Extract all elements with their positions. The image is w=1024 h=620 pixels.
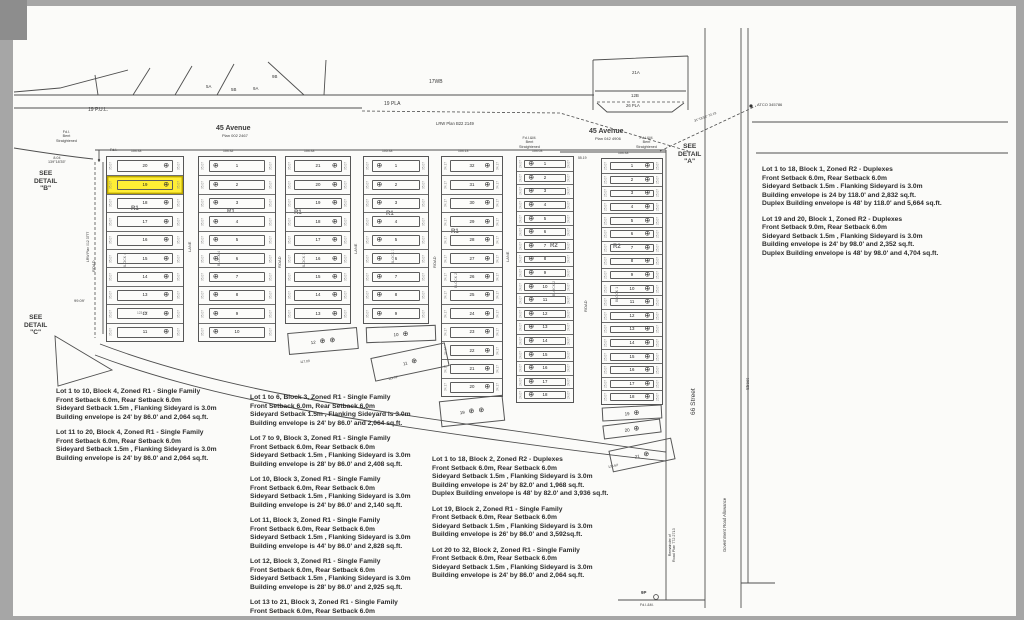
dimension-label: 35.07: [344, 273, 347, 281]
survey-marker-icon: ⊕: [528, 310, 534, 317]
dimension-label: 25.07: [604, 176, 607, 184]
see-detail-c-label: SEE DETAIL "C": [24, 314, 47, 337]
dimension-label: 35.07: [288, 218, 291, 226]
lot-row-block-2-east-18: 24.0724.0718⊕: [517, 388, 573, 402]
survey-marker-icon: ⊕: [484, 163, 490, 170]
dimension-label: 25.07: [656, 380, 659, 388]
zoning-note-line: Lot 11 to 20, Block 4, Zoned R1 - Single…: [56, 429, 252, 438]
lot-row-block-1-13: 25.0725.0713⊕: [602, 322, 662, 336]
lot-row-block-2-east-14: 24.0724.0714⊕: [517, 334, 573, 348]
lot-row-block-3-east-7: 35.0735.077⊕: [364, 267, 428, 285]
dimension-label: 25.07: [604, 353, 607, 361]
survey-marker-icon: ⊕: [163, 237, 169, 244]
dimension-label: 35.07: [344, 236, 347, 244]
building-envelope: 13⊕: [117, 290, 173, 301]
map-label: ROAD: [584, 300, 589, 312]
dimension-label: 35.07: [177, 236, 180, 244]
zoning-note-line: Sideyard Setback 1.5m , Flanking Sideyar…: [250, 534, 448, 543]
survey-marker-icon: ⊕: [484, 237, 490, 244]
dimension-label: 35.07: [201, 291, 204, 299]
lot-row-block-3-west-17: 35.0735.0717⊕: [286, 231, 350, 249]
dimension-label: 34.17: [496, 162, 499, 170]
dimension-label: 25.07: [604, 189, 607, 197]
dimension-label: 35.07: [366, 162, 369, 170]
dimension-label: 35.07: [201, 255, 204, 263]
survey-marker-icon: ⊕: [332, 292, 338, 299]
survey-marker-icon: ⊕: [402, 330, 408, 337]
dimension-label: 34.17: [444, 218, 447, 226]
dimension-label: 35.07: [269, 255, 272, 263]
dimension-label: 35.07: [288, 181, 291, 189]
map-label: Fd.I.&M. Bent Straightened: [636, 136, 657, 149]
survey-marker-icon: ⊕: [644, 162, 650, 169]
map-label: 9P: [641, 590, 646, 595]
survey-marker-icon: ⊕: [644, 244, 650, 251]
survey-marker-icon: ⊕: [484, 255, 490, 262]
dimension-label: 25.07: [604, 312, 607, 320]
building-envelope: 17⊕: [117, 216, 173, 227]
survey-marker-icon: ⊕: [376, 237, 382, 244]
dimension-label: 35.07: [269, 199, 272, 207]
survey-marker-icon: ⊕: [376, 182, 382, 189]
zoning-note-line: Building envelope is 24' by 86.0' and 2,…: [250, 420, 448, 429]
dimension-label: 35.07: [366, 273, 369, 281]
building-envelope: 27⊕: [450, 253, 494, 264]
dimension-label: 34.17: [444, 291, 447, 299]
lot-row-block-2-west-24: 34.1734.1724⊕: [442, 304, 502, 322]
dimension-label: 34.17: [444, 383, 447, 391]
lot-row-block-2-west-31: 34.1734.1731⊕: [442, 175, 502, 193]
building-envelope: 17⊕: [294, 235, 341, 246]
lot-row-block-2-west-23: 34.1734.1723⊕: [442, 323, 502, 341]
building-envelope: 15⊕: [524, 351, 565, 359]
zoning-note-line: Lot 20 to 32, Block 2, Zoned R1 - Single…: [432, 547, 636, 556]
building-envelope: 3⊕: [524, 188, 565, 196]
survey-marker-icon: ⊕: [484, 347, 490, 354]
zoning-note-line: Sideyard Setback 1.5m , Flanking Sideyar…: [250, 411, 448, 420]
dimension-label: 35.07: [344, 310, 347, 318]
survey-marker-icon: ⊕: [484, 182, 490, 189]
map-label: 5A: [206, 84, 211, 89]
building-envelope: 7⊕: [372, 272, 419, 283]
zoning-note-line: Front Setback 6.0m, Rear Setback 6.0m: [250, 526, 448, 535]
dimension-label: 35.07: [177, 273, 180, 281]
zoning-note-paragraph: Lot 1 to 18, Block 1, Zoned R2 - Duplexe…: [762, 166, 1006, 209]
dimension-label: 24.07: [567, 378, 570, 386]
dimension-label: 35.07: [177, 199, 180, 207]
block-2-west: 34.1734.1732⊕34.1734.1731⊕34.1734.1730⊕3…: [441, 156, 503, 397]
building-envelope: 3⊕: [372, 198, 419, 209]
zoning-note-line: Front Setback 9.0m, Rear Setback 6.0m: [762, 224, 1006, 233]
survey-marker-icon: ⊕: [213, 182, 219, 189]
lot-row-block-1-9: 25.0725.079⊕: [602, 268, 662, 282]
zoning-note-line: Building envelope is 24 by 118.0' and 2,…: [762, 192, 1006, 201]
dimension-label: 34.17: [444, 199, 447, 207]
survey-marker-icon: ⊕: [329, 336, 335, 343]
government-road-allowance-label: Government Road Allowance: [723, 498, 728, 552]
dimension-label: 35.07: [109, 162, 112, 170]
survey-marker-icon: ⊕: [528, 324, 534, 331]
dimension-label: 24.07: [567, 391, 570, 399]
map-label: 104.32: [223, 150, 233, 154]
dimension-label: 35.07: [177, 162, 180, 170]
survey-marker-icon: ⊕: [332, 200, 338, 207]
zoning-note-line: Sideyard Setback 1.5m , Flanking Sideyar…: [250, 452, 448, 461]
dimension-label: 24.07: [519, 255, 522, 263]
survey-marker-icon: ⊕: [528, 378, 534, 385]
survey-marker-icon: ⊕: [332, 274, 338, 281]
lot-row-block-2-east-12: 24.0724.0712⊕: [517, 307, 573, 321]
lot-row-block-2-west-29: 34.1734.1729⊕: [442, 212, 502, 230]
dimension-label: 35.07: [201, 273, 204, 281]
dimension-label: 35.07: [288, 236, 291, 244]
building-envelope: 19⊕: [294, 198, 341, 209]
dimension-label: 35.07: [269, 310, 272, 318]
dimension-label: 35.07: [201, 236, 204, 244]
survey-marker-icon: ⊕: [213, 218, 219, 225]
dimension-label: 34.17: [444, 255, 447, 263]
building-envelope: 18⊕: [610, 393, 654, 401]
survey-marker-icon: ⊕: [633, 409, 639, 416]
dimension-label: 24.07: [567, 269, 570, 277]
dimension-label: 35.07: [269, 181, 272, 189]
building-envelope: 6⊕: [610, 230, 654, 238]
dimension-label: 25.07: [656, 339, 659, 347]
zoning-note-line: Building envelope is 24' by 86.0' and 2,…: [250, 502, 448, 511]
survey-marker-icon: ⊕: [528, 392, 534, 399]
dimension-label: 35.07: [288, 162, 291, 170]
dimension-label: 35.07: [109, 199, 112, 207]
lot-row-block-4-west-18: 35.0735.0718⊕: [107, 194, 183, 212]
survey-marker-icon: ⊕: [644, 176, 650, 183]
survey-marker-icon: ⊕: [376, 218, 382, 225]
lot-row-block-4-west-12: 35.0735.0712⊕: [107, 304, 183, 322]
dimension-label: 24.07: [567, 242, 570, 250]
dimension-label: 24.07: [567, 228, 570, 236]
dimension-label: 35.07: [366, 310, 369, 318]
dimension-label: 24.07: [567, 323, 570, 331]
survey-marker-icon: ⊕: [633, 425, 640, 433]
dimension-label: 34.17: [496, 236, 499, 244]
dimension-label: 35.07: [422, 255, 425, 263]
dimension-label: 25.07: [656, 271, 659, 279]
lot-row-block-2-east-10: 24.0724.0710⊕: [517, 279, 573, 293]
survey-marker-icon: ⊕: [528, 202, 534, 209]
zoning-note-line: Front Setback 6.0m, Rear Setback 6.0m: [762, 175, 1006, 184]
scan-edge-top: [0, 0, 1024, 6]
dimension-label: 35.07: [288, 255, 291, 263]
building-envelope: 20⊕: [450, 382, 494, 393]
survey-marker-icon: ⊕: [484, 384, 490, 391]
dimension-label: 35.07: [269, 236, 272, 244]
dimension-label: 34.17: [444, 310, 447, 318]
zoning-note-paragraph: Lot 10, Block 3, Zoned R1 - Single Famil…: [250, 476, 448, 510]
dimension-label: 35.07: [109, 273, 112, 281]
dimension-label: 35.07: [366, 255, 369, 263]
building-envelope: 9⊕: [610, 271, 654, 279]
dimension-label: 34.17: [496, 181, 499, 189]
dimension-label: 35.07: [366, 199, 369, 207]
building-envelope: 11⊕: [117, 327, 173, 338]
map-label: Fd.I.&M. Bent Straightened: [519, 136, 540, 149]
lot-number: 12: [311, 339, 316, 344]
zoning-note-paragraph: Lot 20 to 32, Block 2, Zoned R1 - Single…: [432, 547, 636, 581]
survey-marker-icon: ⊕: [411, 357, 418, 365]
lot-row-block-2-east-9: 24.0724.079⊕: [517, 266, 573, 280]
building-envelope: 21⊕: [294, 160, 341, 171]
zoning-note-line: Front Setback 6.0m, Rear Setback 6.0m: [56, 397, 252, 406]
building-envelope: 6⊕: [524, 228, 565, 236]
dimension-label: 34.17: [496, 347, 499, 355]
dimension-label: 25.07: [604, 203, 607, 211]
building-envelope: 15⊕: [117, 253, 173, 264]
dimension-label: 34.17: [496, 199, 499, 207]
dimension-label: 35.07: [201, 218, 204, 226]
building-envelope: 7⊕: [610, 244, 654, 252]
dimension-label: 24.07: [567, 296, 570, 304]
dimension-label: 34.17: [496, 291, 499, 299]
survey-marker-icon: ⊕: [484, 200, 490, 207]
zoning-note-line: Duplex Building envelope is 48' by 98.0'…: [762, 250, 1006, 259]
block-4-east: 35.0735.071⊕35.0735.072⊕35.0735.073⊕35.0…: [198, 156, 276, 342]
building-envelope: 4⊕: [209, 216, 265, 227]
building-envelope: 18⊕: [294, 216, 341, 227]
building-envelope: 9⊕: [372, 308, 419, 319]
survey-marker-icon: ⊕: [478, 406, 485, 414]
dimension-label: 34.17: [496, 328, 499, 336]
lot-row-block-2-west-26: 34.1734.1726⊕: [442, 267, 502, 285]
zoning-note-line: Sideyard Setback 1.5m , Flanking Sideyar…: [432, 523, 636, 532]
building-envelope: 16⊕: [294, 253, 341, 264]
building-envelope: 20⊕: [294, 180, 341, 191]
lot-row-block-2-west-32: 34.1734.1732⊕: [442, 157, 502, 175]
survey-marker-icon: ⊕: [643, 450, 650, 458]
zoning-note-line: Front Setback 6.0m, Rear Setback 6.0m: [250, 444, 448, 453]
lot-row-block-3-west-15: 35.0735.0715⊕: [286, 267, 350, 285]
dimension-label: 24.07: [519, 337, 522, 345]
dimension-label: 24.07: [519, 228, 522, 236]
dimension-label: 34.17: [444, 162, 447, 170]
dimension-label: 24.07: [567, 283, 570, 291]
zoning-note-line: Lot 10, Block 3, Zoned R1 - Single Famil…: [250, 476, 448, 485]
dimension-label: 25.07: [656, 162, 659, 170]
zoning-note-line: Lot 12, Block 3, Zoned R1 - Single Famil…: [250, 558, 448, 567]
building-envelope: 5⊕: [372, 235, 419, 246]
block-3-east: 35.0735.071⊕35.0735.072⊕35.0735.073⊕35.0…: [363, 156, 429, 324]
map-label: ROAD: [433, 256, 438, 268]
survey-marker-icon: ⊕: [484, 310, 490, 317]
lot-row-block-2-east-17: 24.0724.0717⊕: [517, 375, 573, 389]
survey-marker-icon: ⊕: [163, 329, 169, 336]
zoning-note-line: Building envelope is 28' by 86.0' and 2,…: [250, 461, 448, 470]
building-envelope: 21⊕: [450, 364, 494, 375]
building-envelope: 13⊕: [294, 308, 341, 319]
building-envelope: 11⊕: [524, 296, 565, 304]
dimension-label: 35.07: [288, 310, 291, 318]
zoning-note-line: Front Setback 6.0m, Rear Setback 6.0m: [250, 608, 448, 617]
lot-10-block-3: 10⊕: [366, 325, 437, 343]
map-label: 104.33: [131, 150, 141, 154]
dimension-label: 34.17: [496, 383, 499, 391]
survey-marker-icon: ⊕: [644, 231, 650, 238]
building-envelope: 5⊕: [524, 215, 565, 223]
zoning-note-line: Lot 1 to 6, Block 3, Zoned R1 - Single F…: [250, 394, 448, 403]
avenue-45-west-label: 45 Avenue: [216, 125, 251, 133]
lot-row-block-3-east-3: 35.0735.073⊕: [364, 194, 428, 212]
lot-row-block-4-west-11: 35.0735.0711⊕: [107, 323, 183, 341]
dimension-label: 35.07: [109, 328, 112, 336]
avenue-45-east-plan: Plan 042 4906: [595, 137, 621, 142]
lot-row-block-3-east-8: 35.0735.078⊕: [364, 286, 428, 304]
notes-block-3: Lot 1 to 6, Block 3, Zoned R1 - Single F…: [250, 394, 448, 620]
survey-marker-icon: ⊕: [528, 365, 534, 372]
lot-row-block-3-east-5: 35.0735.075⊕: [364, 231, 428, 249]
zoning-note-line: Building envelope is 24' by 82.0' and 1,…: [432, 482, 636, 491]
map-label: ROAD: [92, 260, 97, 272]
dimension-label: 24.07: [519, 391, 522, 399]
survey-marker-icon: ⊕: [376, 292, 382, 299]
dimension-label: 25.07: [604, 325, 607, 333]
building-envelope: 20⊕: [117, 160, 173, 171]
zoning-note-line: Duplex Building envelope is 48' by 82.0'…: [432, 490, 636, 499]
dimension-label: 34.17: [444, 236, 447, 244]
lot-row-block-2-west-21: 34.1734.1721⊕: [442, 359, 502, 377]
dimension-label: 25.07: [604, 366, 607, 374]
building-envelope: 29⊕: [450, 216, 494, 227]
survey-marker-icon: ⊕: [213, 255, 219, 262]
dimension-label: 35.07: [269, 273, 272, 281]
map-label: 104.03: [532, 150, 542, 154]
dimension-label: 35.07: [269, 162, 272, 170]
dimension-label: 34.17: [496, 365, 499, 373]
dimension-label: 35.07: [177, 310, 180, 318]
survey-marker-icon: ⊕: [163, 274, 169, 281]
zoning-note-paragraph: Lot 1 to 6, Block 3, Zoned R1 - Single F…: [250, 394, 448, 428]
zoning-note-line: Front Setback 6.0m, Rear Setback 6.0m: [56, 438, 252, 447]
map-label: LANE: [506, 252, 511, 262]
dimension-label: 24.07: [567, 364, 570, 372]
dimension-label: 35.07: [201, 181, 204, 189]
building-envelope: 1⊕: [209, 160, 265, 171]
dimension-label: 34.17: [496, 310, 499, 318]
building-envelope: 11⊕: [610, 298, 654, 306]
zoning-note-line: Sideyard Setback 1.5m , Flanking Sideyar…: [432, 564, 636, 573]
survey-marker-icon: ⊕: [484, 218, 490, 225]
building-envelope: 14⊕: [294, 290, 341, 301]
survey-marker-icon: ⊕: [644, 190, 650, 197]
building-envelope: 32⊕: [450, 160, 494, 171]
survey-marker-icon: ⊕: [644, 204, 650, 211]
lot-row-block-1-14: 25.0725.0714⊕: [602, 336, 662, 350]
survey-marker-icon: ⊕: [644, 380, 650, 387]
survey-marker-icon: ⊕: [376, 200, 382, 207]
building-envelope: 19⊕: [117, 180, 173, 191]
dimension-label: 35.07: [422, 291, 425, 299]
building-envelope: 5⊕: [209, 235, 265, 246]
zoning-note-line: Lot 1 to 10, Block 4, Zoned R1 - Single …: [56, 388, 252, 397]
map-label: LRW Plan 012 3777: [87, 232, 91, 262]
zoning-note-line: Lot 13 to 21, Block 3, Zoned R1 - Single…: [250, 599, 448, 608]
building-envelope: 26⊕: [450, 272, 494, 283]
dimension-label: 24.07: [567, 201, 570, 209]
lot-row-block-2-east-16: 24.0724.0716⊕: [517, 361, 573, 375]
map-label: Fd.I. Bent Straightened: [56, 130, 77, 143]
map-label: 105.33: [382, 150, 392, 154]
building-envelope: 13⊕: [610, 326, 654, 334]
dimension-label: 35.07: [269, 291, 272, 299]
lot-row-block-3-west-19: 35.0735.0719⊕: [286, 194, 350, 212]
dimension-label: 35.07: [288, 199, 291, 207]
dimension-label: 35.07: [109, 310, 112, 318]
zoning-note-line: Sideyard Setback 1.5m , Flanking Sideyar…: [56, 446, 252, 455]
building-envelope: 4⊕: [524, 201, 565, 209]
dimension-label: 34.17: [444, 181, 447, 189]
building-envelope: 7⊕: [524, 242, 565, 250]
lot-row-block-4-east-6: 35.0735.076⊕: [199, 249, 275, 267]
dimension-label: 24.07: [519, 242, 522, 250]
see-detail-a-label: SEE DETAIL "A": [678, 143, 701, 166]
building-envelope: 10⊕: [524, 283, 565, 291]
dimension-label: 35.07: [288, 273, 291, 281]
dimension-label: 24.07: [519, 269, 522, 277]
dimension-label: 24.07: [567, 255, 570, 263]
building-envelope: 2⊕: [209, 180, 265, 191]
dimension-label: 35.07: [422, 162, 425, 170]
building-envelope: 8⊕: [372, 290, 419, 301]
dimension-label: 35.07: [109, 291, 112, 299]
dimension-label: 34.17: [496, 218, 499, 226]
dimension-label: 25.07: [656, 189, 659, 197]
road-label-19-pul: 19 P.U.L.: [88, 108, 108, 114]
block-3-west: 35.0735.0721⊕35.0735.0720⊕35.0735.0719⊕3…: [285, 156, 351, 324]
dimension-label: 35.07: [201, 310, 204, 318]
lot-row-block-1-12: 25.0725.0712⊕: [602, 309, 662, 323]
dimension-label: 35.07: [344, 199, 347, 207]
building-envelope: 4⊕: [372, 216, 419, 227]
dimension-label: 35.07: [366, 236, 369, 244]
building-envelope: 13⊕: [524, 324, 565, 332]
scan-edge-right: [1016, 0, 1024, 620]
lot-row-block-3-west-16: 35.0735.0716⊕: [286, 249, 350, 267]
dimension-label: 35.07: [201, 328, 204, 336]
survey-marker-icon: ⊕: [332, 163, 338, 170]
dimension-label: 35.07: [366, 218, 369, 226]
zoning-note-line: Building envelope is 24' by 86.0' and 2,…: [432, 572, 636, 581]
lot-row-block-1-18: 25.0725.0718⊕: [602, 390, 662, 404]
lot-row-block-4-west-17: 35.0735.0717⊕: [107, 212, 183, 230]
lot-row-block-4-east-7: 35.0735.077⊕: [199, 267, 275, 285]
zoning-note-paragraph: Lot 11, Block 3, Zoned R1 - Single Famil…: [250, 517, 448, 551]
survey-marker-icon: ⊕: [163, 255, 169, 262]
dimension-label: 25.07: [604, 244, 607, 252]
zoning-note-paragraph: Lot 19 and 20, Block 1, Zoned R2 - Duple…: [762, 216, 1006, 259]
map-label: 9B: [272, 74, 277, 79]
map-label: 55.19: [578, 157, 587, 161]
lot-row-block-4-east-10: 35.0735.0710⊕: [199, 323, 275, 341]
lot-row-block-2-west-27: 34.1734.1727⊕: [442, 249, 502, 267]
lot-row-block-2-east-11: 24.0724.0711⊕: [517, 293, 573, 307]
dimension-label: 35.07: [109, 255, 112, 263]
dimension-label: 35.07: [177, 218, 180, 226]
lot-row-block-1-2: 25.0725.072⊕: [602, 173, 662, 187]
dimension-label: 35.07: [422, 218, 425, 226]
dimension-label: 24.07: [567, 310, 570, 318]
building-envelope: 23⊕: [450, 327, 494, 338]
dimension-label: 35.07: [269, 328, 272, 336]
dimension-label: 24.07: [567, 351, 570, 359]
building-envelope: 12⊕: [524, 310, 565, 318]
dimension-label: 35.07: [109, 236, 112, 244]
